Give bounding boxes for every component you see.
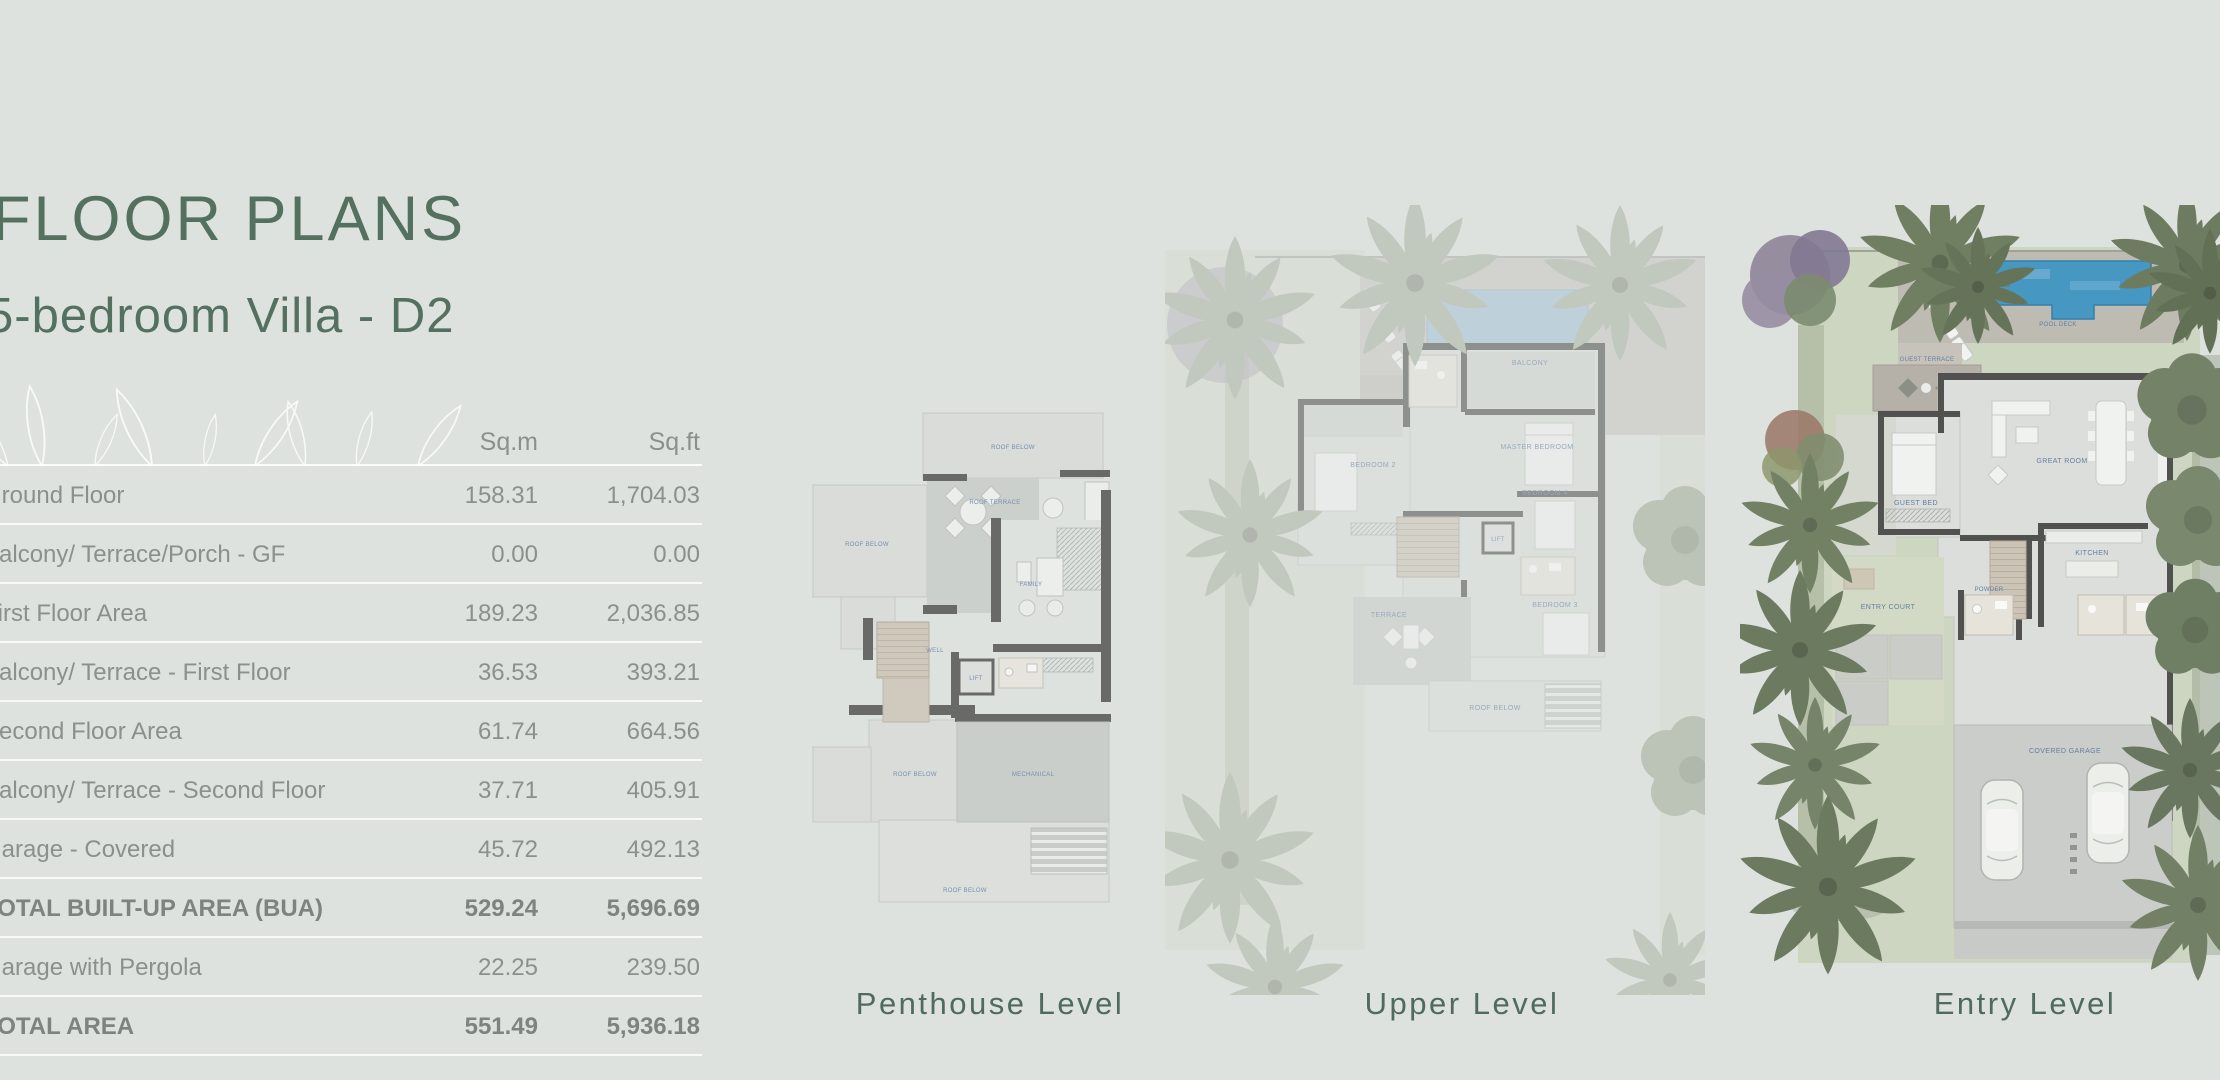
brochure-page: FLOOR PLANS 5-bedroom Villa - D2 Sq.m Sq… [0, 0, 2220, 1080]
room-label: ROOF BELOW [991, 445, 1035, 451]
sqft-value: 5,936.18 [545, 997, 700, 1056]
sqft-value: 5,696.69 [545, 879, 700, 938]
room-label: COVERED GARAGE [2029, 748, 2101, 755]
entry-floor-plan: POOL DECK GUEST TERRACE GUEST BED GREAT … [1740, 205, 2220, 995]
sqft-value: 405.91 [545, 761, 700, 820]
sqm-value: 551.49 [340, 997, 538, 1056]
sqm-value: 36.53 [340, 643, 538, 702]
sqft-value: 1,704.03 [545, 466, 700, 525]
room-label: BEDROOM 2 [1350, 462, 1396, 469]
driveway [1954, 929, 2172, 959]
row-divider [0, 1054, 702, 1056]
roof-area [869, 720, 961, 822]
table-row: Ground Floor 158.31 1,704.03 [0, 466, 705, 525]
caption-upper-level: Upper Level [1365, 986, 1560, 1022]
caption-entry-level: Entry Level [1934, 986, 2117, 1022]
car [2087, 763, 2129, 863]
room-label: BEDROOM 4 [1522, 490, 1568, 497]
room-label: ROOF BELOW [845, 542, 889, 548]
sqm-value: 0.00 [340, 525, 538, 584]
row-label: Balcony/ Terrace - Second Floor [0, 761, 343, 820]
page-title: FLOOR PLANS [0, 183, 466, 255]
room-label: ROOF BELOW [1469, 705, 1520, 712]
room-label: POOL DECK [2039, 322, 2077, 328]
table-row: Garage - Covered 45.72 492.13 [0, 820, 705, 879]
table-row: Balcony/ Terrace/Porch - GF 0.00 0.00 [0, 525, 705, 584]
row-label: First Floor Area [0, 584, 343, 643]
room-label: GREAT ROOM [2036, 458, 2087, 465]
row-label: TOTAL BUILT-UP AREA (BUA) [0, 879, 343, 938]
car [1981, 780, 2023, 880]
sqft-value: 0.00 [545, 525, 700, 584]
room-label: WELL [926, 648, 944, 654]
room-label: TERRACE [1371, 612, 1407, 619]
table-header: Sq.m Sq.ft [0, 420, 705, 464]
bed [1543, 613, 1589, 655]
sqft-value: 393.21 [545, 643, 700, 702]
stairs [877, 622, 929, 678]
room-label: ROOF TERRACE [969, 500, 1020, 506]
pergola-awning [1031, 828, 1107, 874]
roof-area [813, 485, 927, 597]
bathroom [2078, 595, 2124, 635]
table-row: Garage with Pergola 22.25 239.50 [0, 938, 705, 997]
sqm-value: 61.74 [340, 702, 538, 761]
row-label: Ground Floor [0, 466, 343, 525]
room-label: KITCHEN [2075, 550, 2109, 557]
sqft-value: 239.50 [545, 938, 700, 997]
sqft-value: 2,036.85 [545, 584, 700, 643]
room-label: BEDROOM 3 [1532, 602, 1578, 609]
penthouse-floor-plan: ROOF BELOW ROOF BELOW ROOF TERRACE FAMIL… [805, 400, 1125, 985]
room-label: BALCONY [1512, 360, 1548, 367]
room-label: GUEST TERRACE [1900, 357, 1955, 363]
room-label: POWDER [1975, 587, 2004, 593]
stairs [1397, 517, 1459, 577]
room-label: MASTER BEDROOM [1501, 444, 1574, 451]
sqm-value: 37.71 [340, 761, 538, 820]
kitchen-counter [2046, 531, 2142, 543]
bed [1525, 423, 1573, 485]
sqm-value: 22.25 [340, 938, 538, 997]
room-label: LIFT [1491, 537, 1505, 543]
sqm-value: 45.72 [340, 820, 538, 879]
upper-floor-plan: BALCONY MASTER BEDROOM BEDROOM 2 BEDROOM… [1165, 205, 1705, 995]
table-row: Balcony/ Terrace - Second Floor 37.71 40… [0, 761, 705, 820]
room-label: LIFT [969, 676, 983, 682]
room-label: MECHANICAL [1012, 772, 1055, 778]
page-subtitle: 5-bedroom Villa - D2 [0, 288, 454, 344]
bed [1892, 433, 1936, 495]
table-row-total-area: TOTAL AREA 551.49 5,936.18 [0, 997, 705, 1056]
room-label: FAMILY [1020, 582, 1043, 588]
row-label: Balcony/ Terrace/Porch - GF [0, 525, 343, 584]
sqft-value: 492.13 [545, 820, 700, 879]
sqm-value: 189.23 [340, 584, 538, 643]
sqm-value: 529.24 [340, 879, 538, 938]
bathroom [1521, 557, 1575, 595]
row-label: Garage with Pergola [0, 938, 343, 997]
row-label: Second Floor Area [0, 702, 343, 761]
room-label: ROOF BELOW [943, 888, 987, 894]
table-row: First Floor Area 189.23 2,036.85 [0, 584, 705, 643]
row-label: Garage - Covered [0, 820, 343, 879]
room-label: ROOF BELOW [893, 772, 937, 778]
column-header-sqm: Sq.m [380, 420, 538, 464]
column-header-sqft: Sq.ft [545, 420, 700, 464]
row-label: Balcony/ Terrace - First Floor [0, 643, 343, 702]
row-label: TOTAL AREA [0, 997, 343, 1056]
room-label: ENTRY COURT [1861, 604, 1916, 611]
table-row-total-bua: TOTAL BUILT-UP AREA (BUA) 529.24 5,696.6… [0, 879, 705, 938]
table-row: Second Floor Area 61.74 664.56 [0, 702, 705, 761]
roof-area [813, 747, 871, 822]
caption-penthouse-level: Penthouse Level [856, 986, 1124, 1022]
room-label: GUEST BED [1894, 500, 1938, 507]
table-row: Balcony/ Terrace - First Floor 36.53 393… [0, 643, 705, 702]
sqm-value: 158.31 [340, 466, 538, 525]
bed [1535, 501, 1575, 549]
dining-table [2096, 401, 2126, 485]
sqft-value: 664.56 [545, 702, 700, 761]
